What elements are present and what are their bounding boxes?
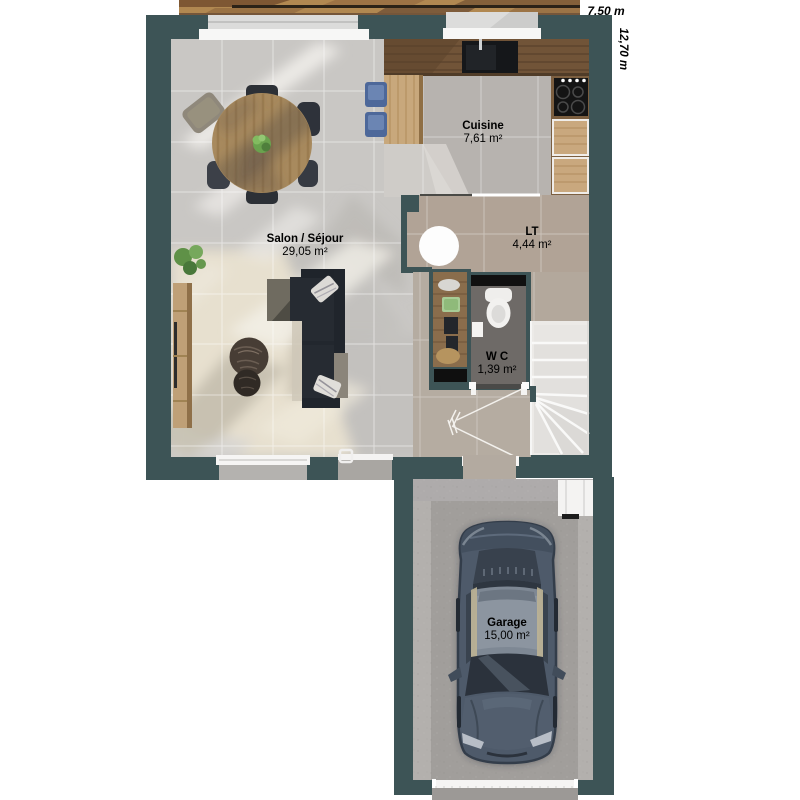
svg-text:29,05 m²: 29,05 m² xyxy=(282,246,328,258)
svg-text:W C: W C xyxy=(486,351,508,363)
svg-text:Salon / Séjour: Salon / Séjour xyxy=(267,233,344,245)
svg-text:Garage: Garage xyxy=(487,617,527,629)
svg-text:12,70 m: 12,70 m xyxy=(617,28,629,70)
svg-text:15,00 m²: 15,00 m² xyxy=(484,630,530,642)
svg-text:7,61 m²: 7,61 m² xyxy=(464,133,503,145)
svg-text:1,39 m²: 1,39 m² xyxy=(478,364,517,376)
svg-text:Cuisine: Cuisine xyxy=(462,120,504,132)
svg-text:4,44 m²: 4,44 m² xyxy=(513,239,552,251)
svg-text:LT: LT xyxy=(525,226,538,238)
